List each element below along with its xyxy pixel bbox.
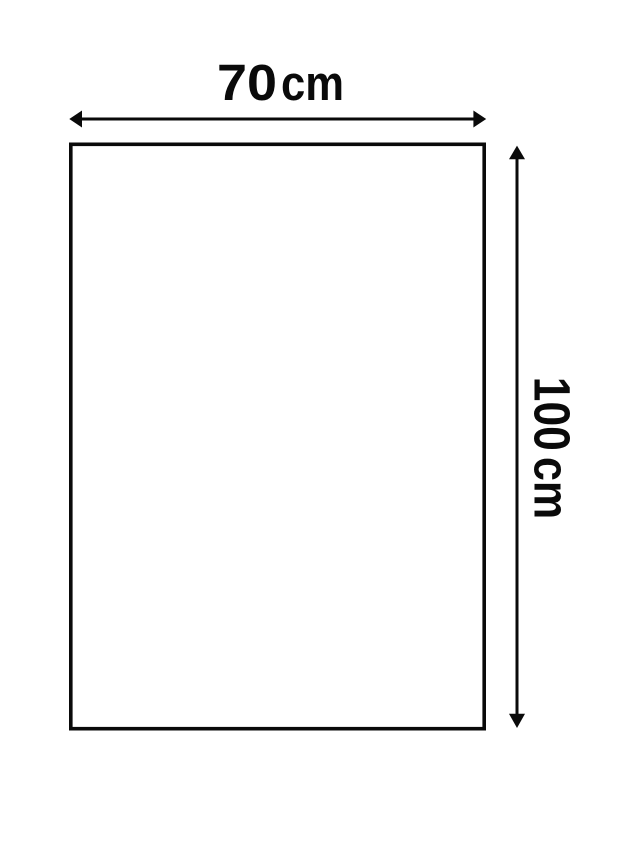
svg-text:cm: cm xyxy=(281,57,344,111)
svg-text:100: 100 xyxy=(524,377,581,451)
svg-text:70: 70 xyxy=(217,54,277,111)
svg-text:cm: cm xyxy=(524,457,578,519)
